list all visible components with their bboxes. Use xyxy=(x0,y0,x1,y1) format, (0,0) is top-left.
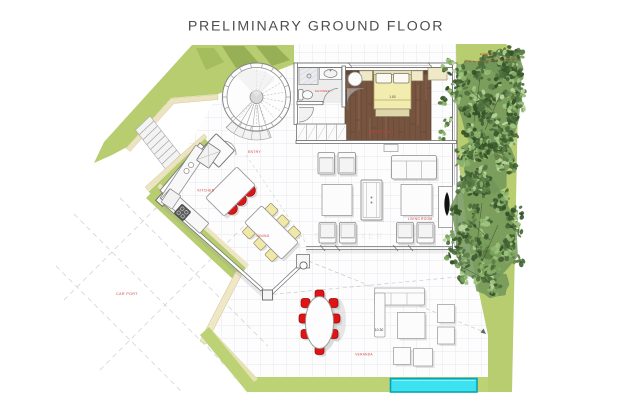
svg-text:VERANDA: VERANDA xyxy=(355,353,373,357)
svg-text:CAR PORT: CAR PORT xyxy=(116,292,138,296)
svg-text:PRELIMINARY GROUND FLOOR: PRELIMINARY GROUND FLOOR xyxy=(188,19,444,35)
svg-text:LIVING ROOM: LIVING ROOM xyxy=(408,217,433,221)
svg-text:1.80: 1.80 xyxy=(389,95,396,99)
svg-text:BEDROOM 1: BEDROOM 1 xyxy=(370,130,393,134)
svg-text:KITCHEN: KITCHEN xyxy=(198,189,215,193)
svg-text:ENTRY: ENTRY xyxy=(248,150,261,154)
svg-text:DINING: DINING xyxy=(257,234,270,238)
svg-text:EXISTING: EXISTING xyxy=(480,52,495,56)
svg-text:10.30: 10.30 xyxy=(375,328,384,332)
